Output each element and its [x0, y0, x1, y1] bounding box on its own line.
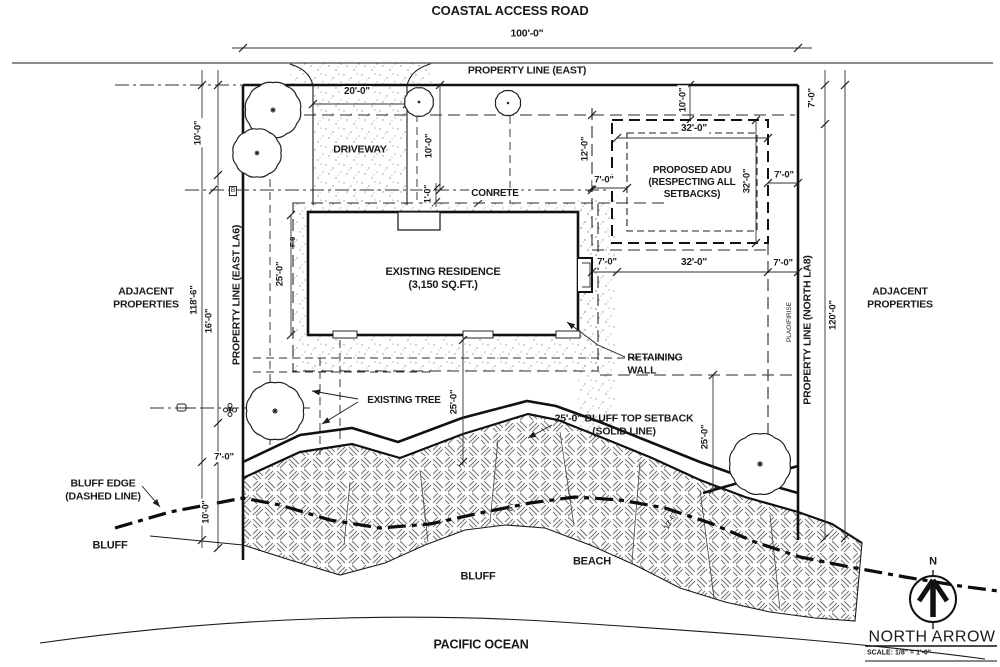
dim-right-25: 25'-0" — [699, 423, 710, 452]
dim-corner-right-top: 7'-0" — [806, 86, 817, 110]
existing-tree-label: EXISTING TREE — [367, 395, 441, 407]
driveway-label: DRIVEWAY — [333, 144, 386, 157]
concrete-label: CONRETE — [469, 188, 521, 200]
dim-adu-left-gap: 12'-0" — [579, 135, 590, 164]
road-title: COASTAL ACCESS ROAD — [431, 3, 588, 19]
dim-mid-25: 25'-0" — [448, 388, 459, 417]
ocean-title: PACIFIC OCEAN — [433, 638, 528, 653]
residence-label: EXISTING RESIDENCE (3,150 SQ.FT.) — [353, 266, 533, 292]
bluff-edge-label: BLUFF EDGE (DASHED LINE) — [65, 477, 141, 502]
north-n: N — [929, 555, 937, 568]
retaining-wall-label: RETAINING WALL — [627, 351, 682, 376]
bluff-mid-label: BLUFF — [460, 570, 495, 583]
dim-residence-side: 25'-0" — [274, 260, 285, 289]
dim-driveway-side: 10'-0" — [423, 132, 434, 161]
bluff-setback-label: 25'-0" BLUFF TOP SETBACK (SOLID LINE) — [524, 412, 724, 437]
flower-symbol — [224, 404, 237, 417]
adu-label: PROPOSED ADU (RESPECTING ALL SETBACKS) — [627, 165, 757, 201]
dim-below-width: 32'-0" — [679, 257, 709, 269]
site-plan: COASTAL ACCESS ROAD 100'-0" PROPERTY LIN… — [0, 0, 1000, 667]
dim-adu-top-offset: 10'-0" — [677, 86, 688, 115]
garbled-near-residence: F-9 — [290, 237, 298, 247]
dim-adu-side-left: 7'-0" — [592, 174, 616, 185]
dim-lot-width: 100'-0" — [511, 28, 544, 41]
utility-symbols — [177, 404, 237, 417]
garbled-hatch-a: BY — [507, 502, 517, 512]
dim-seven-bottom-left: 7'-0" — [212, 451, 236, 462]
dim-adu-side-right: 7'-0" — [772, 169, 796, 180]
dim-adu-width-top: 32'-0" — [679, 123, 709, 135]
dim-lot-depth-right: 120'-0" — [827, 298, 838, 332]
dim-below-right: 7'-0" — [771, 257, 795, 268]
adjacent-properties-right: ADJACENT PROPERTIES — [867, 285, 933, 310]
property-line-east-side-label: PROPERTY LINE (EAST LA6) — [231, 225, 244, 365]
adjacent-properties-left: ADJACENT PROPERTIES — [113, 285, 179, 310]
dim-lot-depth-left: 118'-6" — [188, 283, 199, 316]
b-symbol: B — [229, 186, 237, 196]
dim-one-foot: 1'-0" — [423, 183, 434, 205]
garbled-right-pl: PLAOIFIRISE — [786, 302, 794, 342]
beach-label: BEACH — [573, 555, 611, 568]
dim-sixteen: 16'-0" — [203, 307, 214, 336]
bluff-left-label: BLUFF — [92, 539, 127, 552]
dim-adu-depth-right: 32'-0" — [741, 167, 752, 196]
dim-ten-bottom-left: 10'-0" — [201, 498, 212, 525]
site-plan-drawing — [0, 0, 1000, 667]
north-arrow-label: NORTH ARROW — [869, 627, 996, 646]
dim-front-setback-left: 10'-0" — [192, 119, 203, 148]
property-line-north-label: PROPERTY LINE (NORTH LA8) — [802, 255, 815, 404]
property-line-east-label: PROPERTY LINE (EAST) — [468, 65, 586, 78]
dim-driveway-width: 20'-0" — [342, 86, 372, 98]
dim-below-left: 7'-0" — [595, 256, 619, 267]
scale-label: SCALE: 1/8" = 1'-0" — [867, 650, 931, 657]
